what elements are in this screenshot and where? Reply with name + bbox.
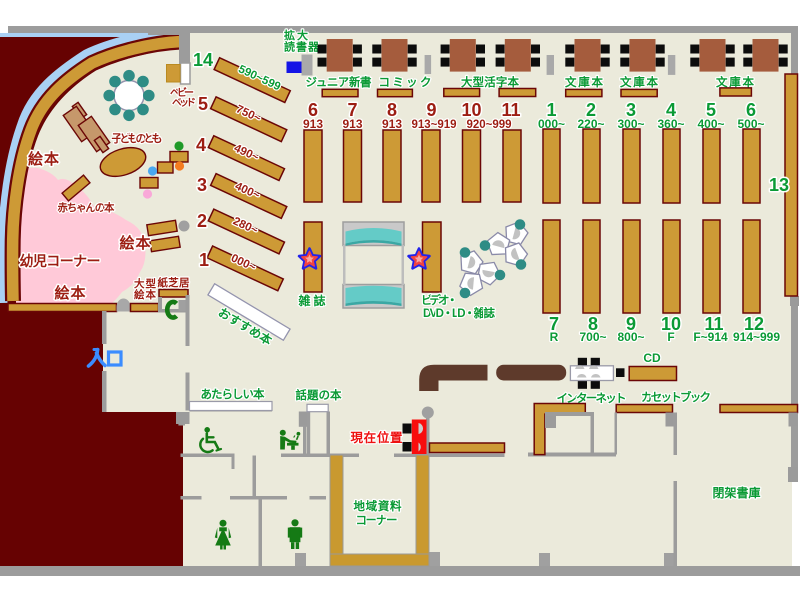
svg-text:文庫本: 文庫本 (620, 75, 659, 89)
svg-text:1: 1 (199, 250, 209, 270)
svg-text:ジュニア新書: ジュニア新書 (306, 75, 373, 89)
svg-text:DVD・LD・雑誌: DVD・LD・雑誌 (423, 306, 496, 320)
svg-text:ビデオ・: ビデオ・ (421, 293, 458, 307)
svg-text:920~999: 920~999 (466, 119, 511, 131)
svg-text:絵本: 絵本 (120, 234, 151, 252)
svg-text:文庫本: 文庫本 (565, 75, 604, 89)
svg-text:絵本: 絵本 (28, 150, 59, 168)
svg-text:11: 11 (501, 100, 520, 120)
svg-text:2: 2 (197, 211, 207, 231)
svg-text:913: 913 (342, 117, 362, 131)
svg-text:4: 4 (196, 135, 206, 155)
svg-text:3: 3 (197, 175, 207, 195)
svg-text:大型活字本: 大型活字本 (461, 75, 520, 89)
svg-text:R: R (550, 330, 559, 344)
svg-text:913: 913 (303, 117, 323, 131)
svg-text:700~: 700~ (579, 330, 606, 344)
svg-text:現在位置: 現在位置 (351, 430, 403, 445)
svg-text:赤ちゃんの本: 赤ちゃんの本 (58, 201, 116, 214)
svg-text:ベッド: ベッド (172, 97, 196, 109)
svg-text:CD: CD (643, 351, 661, 365)
svg-text:あたらしい本: あたらしい本 (201, 387, 266, 401)
svg-text:絵本: 絵本 (134, 288, 157, 301)
svg-text:子どものとも: 子どものとも (112, 132, 163, 145)
svg-text:コーナー: コーナー (356, 514, 398, 527)
svg-text:読書器: 読書器 (284, 40, 320, 54)
svg-text:絵本: 絵本 (55, 284, 86, 302)
svg-text:文庫本: 文庫本 (716, 75, 755, 89)
svg-text:カセットブック: カセットブック (641, 390, 711, 404)
svg-text:幼児コーナー: 幼児コーナー (20, 253, 101, 269)
svg-text:10: 10 (461, 100, 481, 120)
svg-text:914~999: 914~999 (733, 330, 780, 344)
svg-text:9: 9 (426, 100, 436, 120)
svg-text:14: 14 (193, 50, 213, 70)
svg-text:913: 913 (382, 117, 402, 131)
svg-text:F: F (667, 330, 674, 344)
svg-text:800~: 800~ (617, 330, 644, 344)
svg-text:13: 13 (769, 175, 789, 195)
svg-text:F~914: F~914 (693, 330, 728, 344)
svg-text:紙芝居: 紙芝居 (158, 276, 191, 289)
svg-text:5: 5 (198, 94, 208, 114)
svg-text:地域資料: 地域資料 (354, 499, 403, 513)
svg-text:913~919: 913~919 (411, 119, 456, 131)
svg-text:話題の本: 話題の本 (296, 388, 343, 402)
svg-text:閉架書庫: 閉架書庫 (713, 485, 761, 500)
